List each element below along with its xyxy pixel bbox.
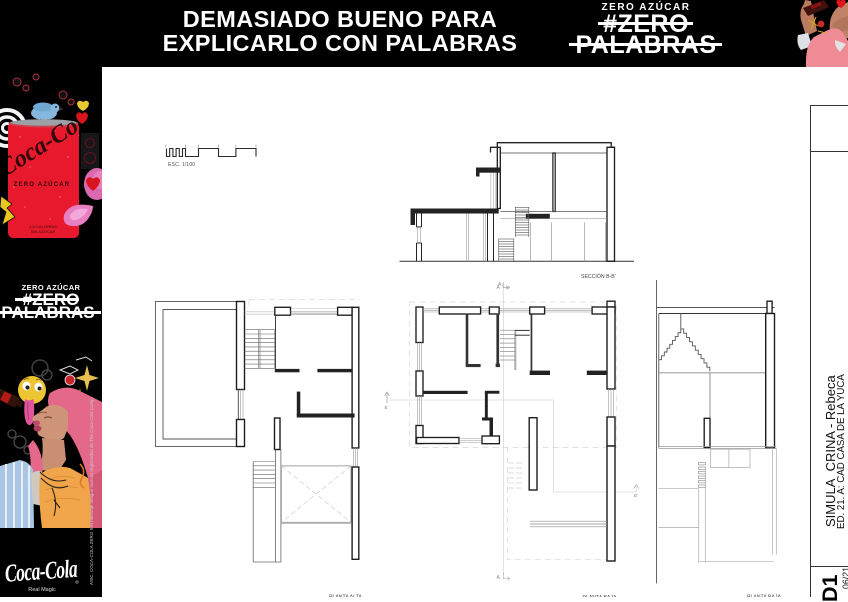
svg-text:ZERO AZÚCAR: ZERO AZÚCAR bbox=[14, 181, 71, 188]
svg-text:SIN AZÚCAR: SIN AZÚCAR bbox=[31, 229, 56, 234]
svg-text:ESC. 1/100: ESC. 1/100 bbox=[168, 162, 195, 168]
svg-text:Coca-Cola: Coca-Cola bbox=[4, 555, 79, 588]
svg-text:Real Magic: Real Magic bbox=[28, 587, 56, 593]
svg-text:B': B' bbox=[634, 493, 638, 498]
svg-text:A: A bbox=[497, 285, 501, 291]
svg-text:B: B bbox=[385, 405, 388, 410]
svg-text:A: A bbox=[497, 575, 501, 581]
